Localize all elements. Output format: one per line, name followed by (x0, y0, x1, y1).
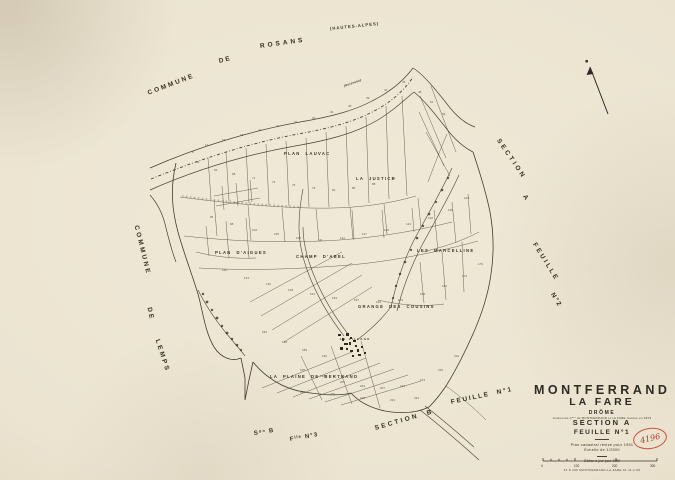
title-divider (595, 439, 609, 440)
edition-line: Édition à jour pour 1959 (534, 459, 670, 464)
cadastral-map-sheet: COMMUNEDEROSANS(HAUTES-ALPES)COMMUNEDELE… (0, 0, 675, 480)
inventory-stamp-number: 4196 (639, 432, 661, 445)
commune-name-line2: LA FARE (534, 397, 670, 409)
scale-line: Échelle de 1/2500 (534, 448, 670, 454)
title-divider-2 (597, 456, 607, 457)
reference-line: 44 S 196 MONTFERRAND-LA-FARE A1 11-1-59 (534, 468, 670, 472)
department-name: DRÔME (534, 410, 670, 416)
